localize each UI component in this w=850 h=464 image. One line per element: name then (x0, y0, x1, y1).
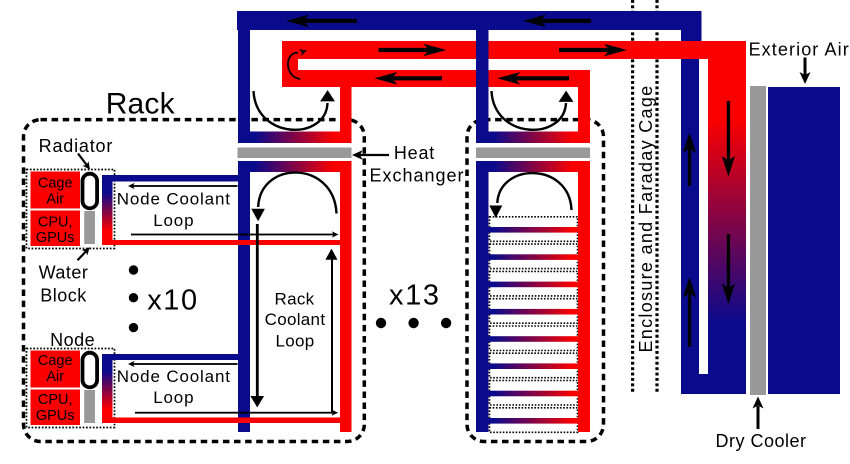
svg-text:Dry Cooler: Dry Cooler (715, 431, 806, 451)
svg-text:Exterior Air: Exterior Air (749, 39, 850, 59)
svg-text:x13: x13 (389, 279, 441, 311)
svg-text:Node Coolant: Node Coolant (117, 190, 231, 209)
svg-text:CPU,: CPU, (38, 215, 73, 231)
svg-text:Node: Node (50, 330, 95, 350)
svg-text:Rack: Rack (275, 289, 315, 308)
svg-text:GPUs: GPUs (36, 230, 75, 246)
svg-text:Air: Air (46, 369, 64, 385)
svg-text:Enclosure and Faraday Cage: Enclosure and Faraday Cage (636, 85, 656, 353)
svg-text:GPUs: GPUs (36, 408, 75, 424)
svg-text:Air: Air (46, 192, 64, 208)
svg-text:Loop: Loop (153, 388, 194, 407)
svg-text:Cage: Cage (38, 353, 73, 369)
svg-text:Exchanger: Exchanger (369, 166, 464, 186)
svg-text:Block: Block (40, 286, 87, 306)
svg-text:x10: x10 (147, 284, 199, 316)
svg-text:Node Coolant: Node Coolant (117, 367, 231, 386)
svg-text:Radiator: Radiator (39, 136, 113, 156)
svg-text:Rack: Rack (106, 88, 176, 121)
svg-text:Loop: Loop (153, 211, 194, 230)
svg-text:CPU,: CPU, (38, 392, 73, 408)
svg-text:Coolant: Coolant (265, 310, 326, 329)
svg-text:Loop: Loop (275, 331, 314, 350)
svg-text:Water: Water (39, 263, 89, 283)
svg-text:Cage: Cage (38, 176, 73, 192)
svg-text:Heat: Heat (394, 143, 435, 163)
